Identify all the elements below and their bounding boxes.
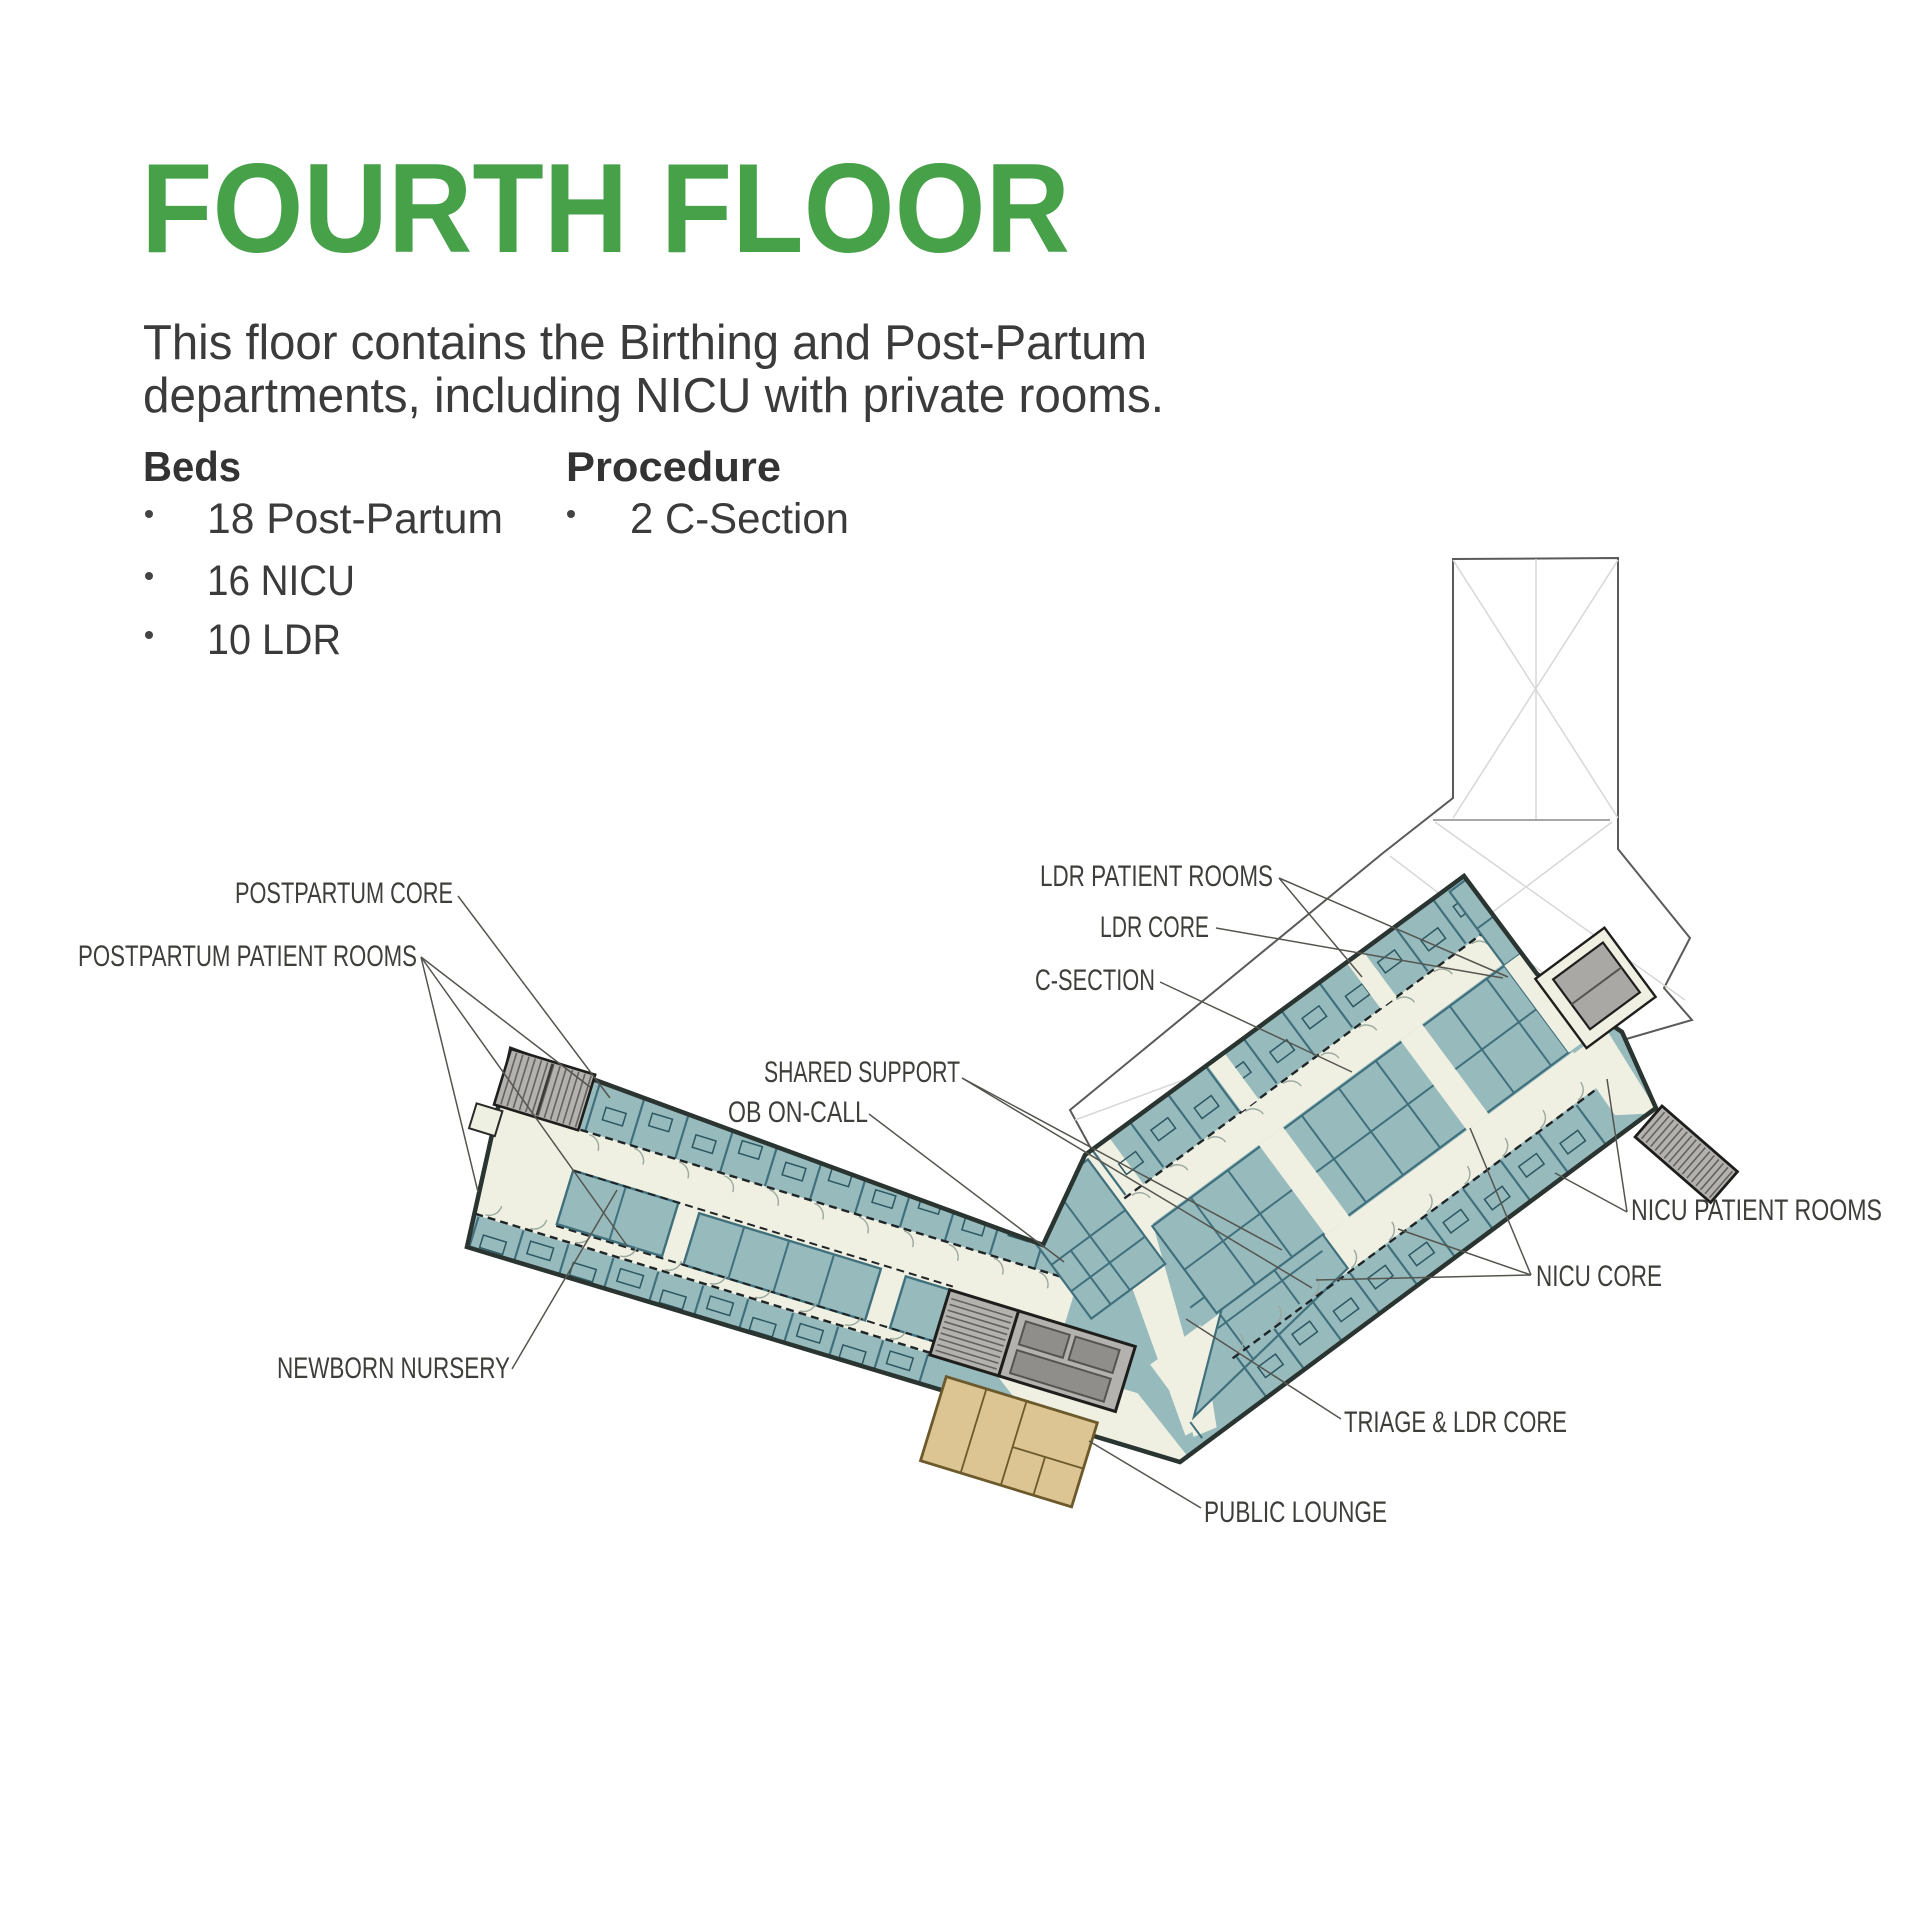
svg-text:POSTPARTUM PATIENT ROOMS: POSTPARTUM PATIENT ROOMS: [78, 940, 417, 973]
svg-text:TRIAGE & LDR CORE: TRIAGE & LDR CORE: [1344, 1406, 1567, 1439]
svg-text:departments, including NICU wi: departments, including NICU with private…: [143, 369, 1164, 423]
svg-text:2 C-Section: 2 C-Section: [630, 495, 849, 543]
svg-text:Procedure: Procedure: [566, 443, 781, 490]
svg-text:Beds: Beds: [143, 443, 241, 490]
svg-text:SHARED SUPPORT: SHARED SUPPORT: [764, 1056, 960, 1089]
svg-text:This floor contains the Birthi: This floor contains the Birthing and Pos…: [143, 316, 1147, 370]
svg-text:LDR PATIENT ROOMS: LDR PATIENT ROOMS: [1040, 860, 1273, 893]
svg-text:POSTPARTUM CORE: POSTPARTUM CORE: [235, 877, 453, 910]
svg-text:LDR CORE: LDR CORE: [1100, 911, 1209, 944]
svg-text:FOURTH FLOOR: FOURTH FLOOR: [141, 137, 1070, 279]
svg-text:18 Post-Partum: 18 Post-Partum: [207, 495, 503, 543]
svg-text:NICU CORE: NICU CORE: [1536, 1260, 1662, 1293]
svg-text:10 LDR: 10 LDR: [207, 616, 341, 664]
svg-text:NICU PATIENT ROOMS: NICU PATIENT ROOMS: [1631, 1194, 1882, 1227]
svg-text:OB ON-CALL: OB ON-CALL: [728, 1096, 868, 1129]
svg-text:C-SECTION: C-SECTION: [1035, 964, 1155, 997]
svg-text:NEWBORN NURSERY: NEWBORN NURSERY: [277, 1352, 510, 1385]
svg-text:PUBLIC LOUNGE: PUBLIC LOUNGE: [1204, 1496, 1387, 1529]
svg-text:16 NICU: 16 NICU: [207, 557, 355, 605]
